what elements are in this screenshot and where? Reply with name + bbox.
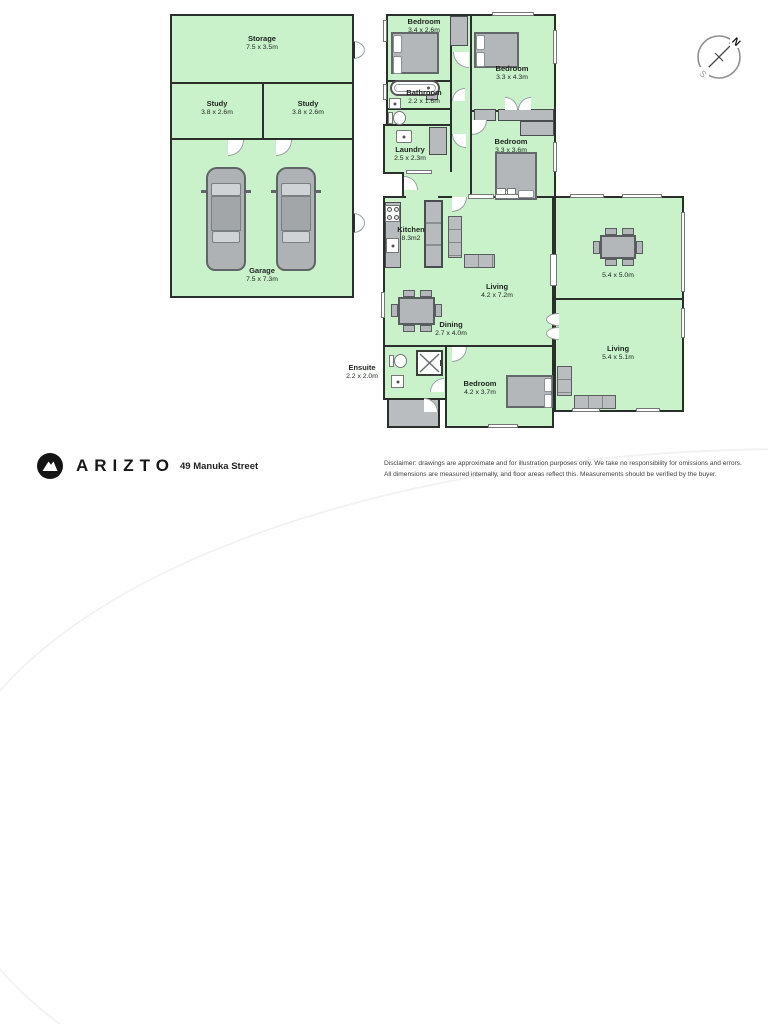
room-dims: 3.4 x 2.6m [408,27,441,36]
pillow [476,35,485,50]
wardrobe [429,127,447,155]
room-dims: 3.8 x 2.6m [201,109,233,118]
room-dims: 2.2 x 2.0m [346,373,378,382]
disclaimer-line: All dimensions are measured internally, … [384,470,766,481]
room-label-bedroom-top: Bedroom 3.4 x 2.6m [408,17,441,36]
car-icon [206,167,246,271]
window-icon [636,408,660,412]
stove-burner [387,215,392,220]
room-name: Laundry [394,145,426,155]
window-icon [572,408,600,412]
chair-icon [420,290,432,297]
room-dims: 7.5 x 7.3m [246,276,278,285]
car-mirror [314,190,321,193]
chair-icon [403,290,415,297]
room-dims: 3.3 x 4.3m [496,74,529,83]
window-icon [381,292,385,318]
dining-table-icon [398,297,435,325]
room-name: Bedroom [464,379,497,389]
sofa-icon [557,366,572,396]
stove-burner [394,215,399,220]
room-label-kitchen: Kitchen 8.3m2 [397,225,425,244]
compass-icon: N S [692,30,746,84]
chair-icon [435,304,442,317]
sliding-door-icon [550,254,557,286]
pillow [393,56,402,74]
room-label-storage: Storage 7.5 x 3.5m [246,34,278,53]
room-label-study-left: Study 3.8 x 2.6m [201,99,233,118]
window-icon [468,194,494,199]
room-label-living-second: Living 5.4 x 5.1m [602,344,634,363]
window-icon [570,194,604,198]
window-icon [553,142,557,172]
room-name: Dining [435,320,467,330]
window-icon [488,424,518,428]
arizto-logo-icon [36,452,64,480]
room-dims: 2.7 x 4.0m [435,330,467,339]
door-icon [353,41,365,59]
room-name: Bedroom [496,64,529,74]
toilet-bowl [393,111,406,125]
window-icon [495,194,519,199]
room-label-bedroom-middle: Bedroom 3.3 x 3.6m [495,137,528,156]
car-rear-window [212,231,240,243]
sink-icon [389,98,401,109]
room-label-sunroom: 5.4 x 5.0m [602,272,634,281]
room-label-laundry: Laundry 2.5 x 2.3m [394,145,426,164]
chair-icon [605,259,617,266]
room-dims: 5.4 x 5.0m [602,272,634,281]
sink-drain [394,102,397,105]
property-address: 49 Manuka Street [180,461,258,472]
room-dims: 5.4 x 5.1m [602,354,634,363]
chair-icon [420,325,432,332]
room-dims: 2.5 x 2.3m [394,155,426,164]
pillow [393,35,402,53]
window-icon [492,12,534,16]
room-name: Storage [246,34,278,44]
room-label-bedroom-upper: Bedroom 3.3 x 4.3m [496,64,529,83]
window-icon [383,20,387,42]
room-label-bathroom: Bathroom 2.2 x 1.6m [406,88,441,107]
laundry-sink-icon [396,130,412,143]
room-name: Bedroom [495,137,528,147]
background-arc-decoration [0,448,768,1024]
door-icon [353,213,365,233]
room-label-dining: Dining 2.7 x 4.0m [435,320,467,339]
car-rear-window [282,231,310,243]
sofa-icon [574,395,616,409]
stove-burner [387,207,392,212]
room-name: Garage [246,266,278,276]
wardrobe [450,16,468,46]
room-label-living-main: Living 4.2 x 7.2m [481,282,513,301]
car-icon [276,167,316,271]
chair-icon [593,241,600,254]
shower-icon [416,350,443,376]
room-dims: 4.2 x 3.7m [464,389,497,398]
kitchen-island [424,200,443,268]
window-icon [553,30,557,64]
chair-icon [636,241,643,254]
chair-icon [391,304,398,317]
car-roof [281,196,311,231]
room-name: Ensuite [346,363,378,373]
toilet-icon [389,353,409,369]
room-dims: 3.3 x 3.6m [495,147,528,156]
room-label-study-right: Study 3.8 x 2.6m [292,99,324,118]
pillow [544,378,552,392]
sink-icon [391,375,404,388]
room-name: Bathroom [406,88,441,98]
wardrobe [498,109,554,121]
window-icon [383,84,387,100]
brand-name: ARIZTO [76,456,175,476]
floorplan-canvas: Storage 7.5 x 3.5m Study 3.8 x 2.6m Stud… [0,0,768,512]
room-label-bedroom-lower: Bedroom 4.2 x 3.7m [464,379,497,398]
room-dims: 7.5 x 3.5m [246,44,278,53]
sofa-icon [464,254,495,268]
chair-icon [622,259,634,266]
room-label-garage: Garage 7.5 x 7.3m [246,266,278,285]
car-windshield [281,183,311,196]
window-icon [406,170,432,174]
table-icon [600,235,636,259]
disclaimer-line: Disclaimer: drawings are approximate and… [384,459,766,470]
room-dims: 4.2 x 7.2m [481,292,513,301]
pillow [518,190,534,198]
room-name: Kitchen [397,225,425,235]
room-name: Living [481,282,513,292]
room-name: Bedroom [408,17,441,27]
car-mirror [244,190,251,193]
sink-drain [403,135,406,138]
doorway-gap [406,194,438,200]
chair-icon [403,325,415,332]
room-dims: 8.3m2 [397,235,425,244]
sofa-icon [448,216,462,258]
wardrobe [520,121,554,136]
window-icon [681,212,685,292]
window-icon [681,308,685,338]
car-mirror [271,190,278,193]
disclaimer-text: Disclaimer: drawings are approximate and… [384,459,766,480]
car-roof [211,196,241,231]
stove-icon [385,205,400,222]
pillow [476,52,485,67]
room-dims: 2.2 x 1.6m [406,98,441,107]
room-name: Living [602,344,634,354]
chair-icon [622,228,634,235]
room-name: Study [201,99,233,109]
toilet-bowl [394,354,407,368]
stove-burner [394,207,399,212]
room-name: Study [292,99,324,109]
window-icon [622,194,662,198]
sink-drain [396,380,399,383]
chair-icon [605,228,617,235]
car-mirror [201,190,208,193]
sink-drain [391,244,394,247]
car-windshield [211,183,241,196]
toilet-icon [388,110,408,126]
room-label-ensuite: Ensuite 2.2 x 2.0m [346,363,378,382]
room-dims: 3.8 x 2.6m [292,109,324,118]
pillow [544,394,552,408]
